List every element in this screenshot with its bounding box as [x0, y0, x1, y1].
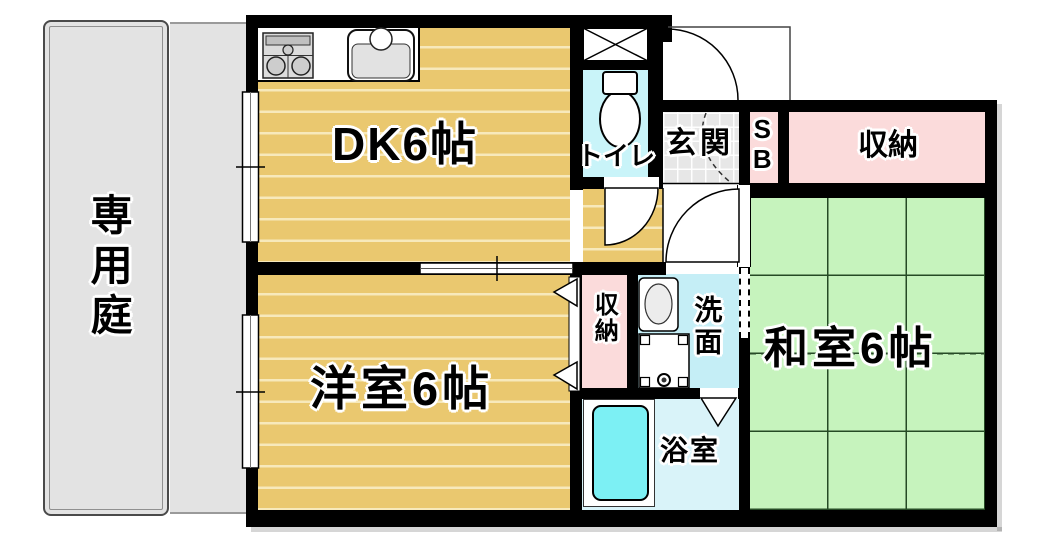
western-room-label: 洋室6帖: [310, 364, 493, 413]
closet-folding-door-symbol: [554, 277, 580, 391]
entrance-porch-outline: [668, 27, 790, 100]
sliding-door-symbol: [420, 256, 573, 281]
kitchen-sink-icon: [348, 28, 414, 81]
private-garden-label: 専用庭: [86, 193, 130, 343]
shoe-box-label: SB: [748, 114, 775, 174]
washroom-label: 洗面: [692, 295, 721, 359]
dk-label: DK6帖: [332, 120, 478, 168]
storage-hall-label: 収納: [858, 130, 918, 162]
toilet-label: トイレ: [577, 143, 655, 170]
entrance-door-swing-arc: [667, 29, 738, 100]
western-room-window-symbol: [236, 315, 265, 468]
bathroom-label: 浴室: [660, 436, 720, 465]
floor-plan: 専用庭 DK6帖 洋室6帖 和室6帖 トイレ 玄関 SB 収納 収納 洗面 浴室: [0, 0, 1037, 541]
storage-small-label: 収納: [591, 292, 616, 344]
japanese-room-label: 和室6帖: [764, 326, 936, 372]
toilet-fixture-icon: [600, 72, 640, 147]
stove-icon: [263, 33, 313, 78]
hall-door-swing: [666, 189, 739, 262]
washbasin-icon: [639, 278, 678, 331]
toilet-door-swing: [605, 188, 658, 245]
washing-machine-pan-icon: [639, 334, 689, 388]
pipe-space-x-box: [583, 28, 648, 61]
dk-window-symbol: [236, 92, 265, 242]
entrance-label: 玄関: [666, 128, 734, 160]
bathroom-folding-door-symbol: [701, 398, 736, 426]
symbols-overlay: [0, 0, 1037, 541]
